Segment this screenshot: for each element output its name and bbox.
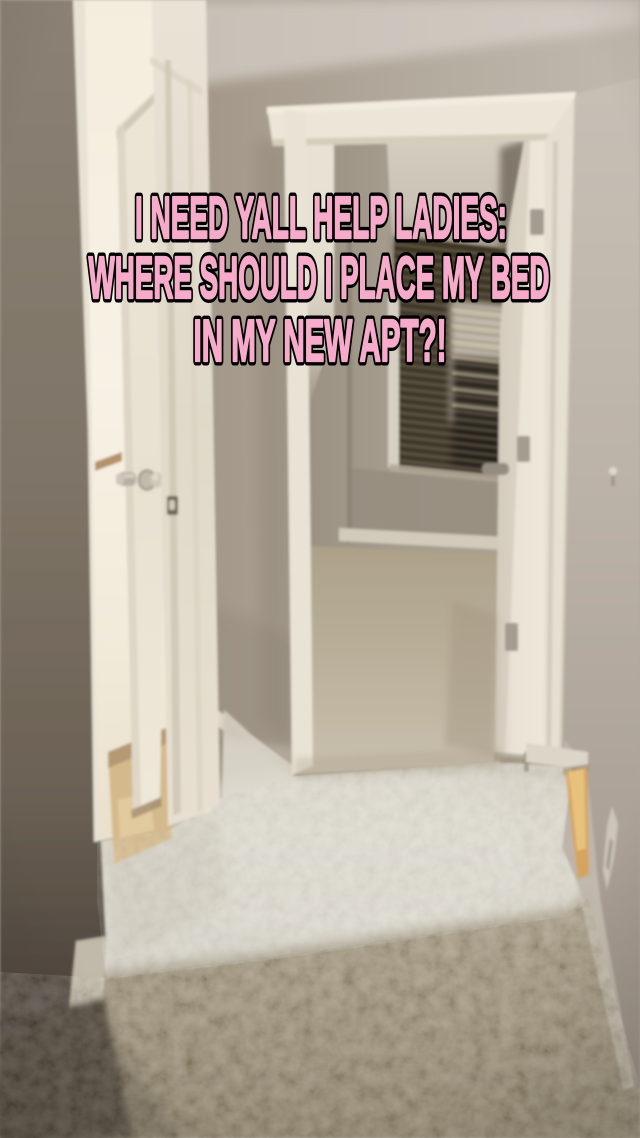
- svg-text:I NEED YALL HELP LADIES:: I NEED YALL HELP LADIES:: [135, 185, 507, 251]
- svg-text:IN MY NEW APT?!: IN MY NEW APT?!: [194, 308, 447, 374]
- svg-text:WHERE SHOULD I PLACE MY BED: WHERE SHOULD I PLACE MY BED: [89, 245, 550, 311]
